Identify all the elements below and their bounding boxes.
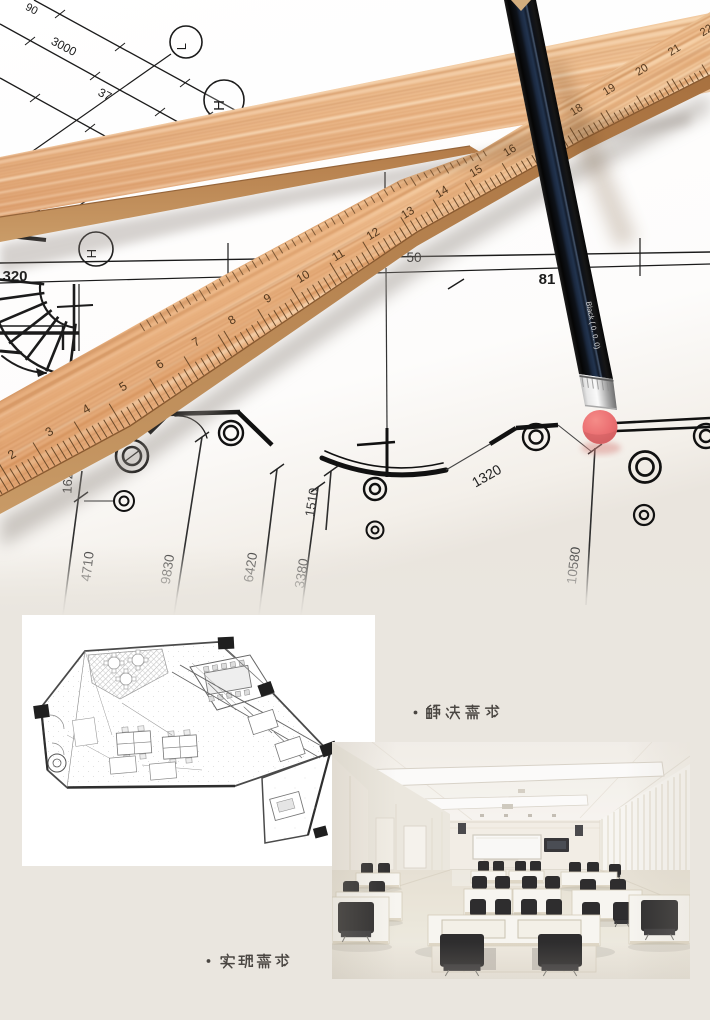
svg-text:H: H	[211, 100, 228, 111]
svg-text:L: L	[174, 43, 189, 50]
svg-text:81: 81	[539, 271, 556, 288]
